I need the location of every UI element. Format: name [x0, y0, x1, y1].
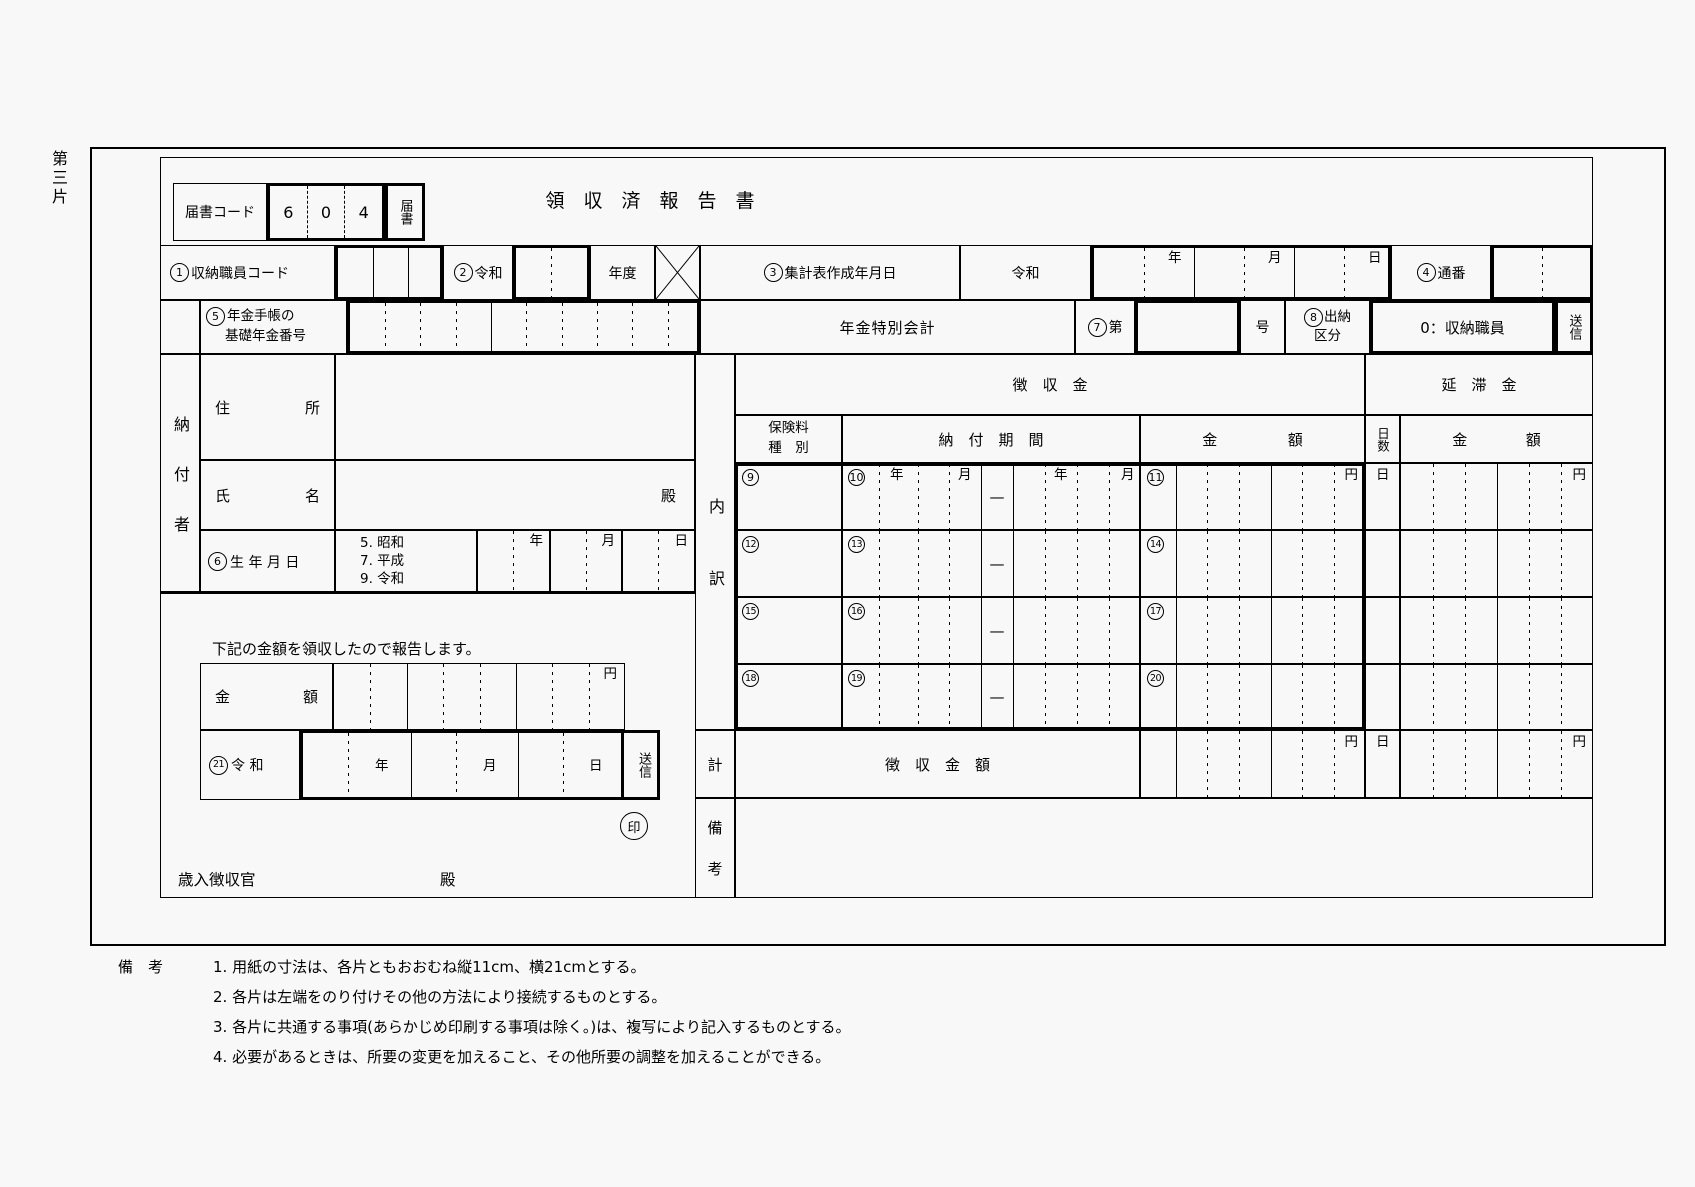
total-row-label: 計: [695, 730, 735, 798]
premium-type-line2: 種 別: [768, 439, 809, 459]
staff-code-text: 収納職員コード: [191, 263, 289, 283]
note-item: 3. 各片に共通する事項(あらかじめ印刷する事項は除く。)は、複写により記入する…: [213, 1016, 851, 1037]
premium-type-cell: 15: [735, 597, 842, 664]
circled-1: 1: [170, 263, 189, 282]
amount-label-right: 額: [303, 686, 318, 707]
amount-header-right: 額: [1526, 429, 1541, 450]
circled-11: 11: [1147, 469, 1164, 486]
cross-mark: [656, 246, 699, 299]
month-unit: 月: [483, 760, 497, 774]
period-dash: —: [981, 531, 1013, 596]
fiscal-year-input-cells: [513, 245, 590, 300]
note-item: 4. 必要があるときは、所要の変更を加えること、その他所要の調整を加えることがで…: [213, 1046, 830, 1067]
remarks-label: 備考: [705, 820, 726, 902]
circled-4: 4: [1417, 263, 1436, 282]
form-code-tab-label: 届書: [396, 199, 415, 225]
premium-type-line1: 保険料: [768, 419, 809, 439]
year-unit: 年: [530, 535, 544, 549]
year-unit: 年: [890, 469, 904, 483]
report-date-cells: 年 月 日 送信: [300, 730, 660, 800]
payment-period-header: 納 付 期 間: [842, 415, 1140, 463]
form-code-label: 届書コード: [173, 183, 267, 241]
crossed-out-cell: [655, 245, 700, 300]
premium-type-cell: 18: [735, 664, 842, 730]
period-dash: —: [981, 598, 1013, 663]
spacer-cell: [160, 300, 200, 354]
late-fee-days-cell: 日: [1365, 463, 1400, 530]
period-dash: —: [981, 464, 1013, 529]
serial-input-cells: [1491, 245, 1593, 300]
total-collection-amount-cell: 円: [1140, 730, 1365, 798]
address-label: 住所: [200, 354, 335, 460]
late-fee-days-cell: [1365, 597, 1400, 664]
circled-21: 21: [209, 756, 228, 775]
circled-19: 19: [848, 670, 865, 687]
yen-unit: 円: [1345, 736, 1359, 750]
amount-label: 金額: [200, 663, 333, 730]
circled-15: 15: [742, 603, 759, 620]
premium-type-cell: 12: [735, 530, 842, 597]
dai-text: 第: [1109, 317, 1123, 337]
collection-amount-cell: 14: [1140, 530, 1365, 597]
seal-char: 印: [627, 817, 640, 836]
breakdown-group-cell: 内訳: [695, 354, 735, 730]
send-flag-cell: 送信: [624, 733, 663, 797]
form-code-digit: 6: [270, 186, 308, 238]
name-input-cell: 殿: [335, 460, 695, 530]
month-unit: 月: [1121, 469, 1135, 483]
dono-honorific: 殿: [661, 485, 676, 506]
page-side-label: 第三片: [46, 150, 70, 207]
yen-unit: 円: [1345, 469, 1359, 483]
amount-header-left: 金: [1452, 429, 1467, 450]
dai-label: 7第: [1075, 300, 1135, 354]
basic-pension-number-line2: 基礎年金番号: [206, 327, 346, 347]
total-collection-label: 徴 収 金 額: [735, 730, 1140, 798]
circled-20: 20: [1147, 670, 1164, 687]
fiscal-era-label: 2令和: [443, 245, 513, 300]
birth-year-cells: 年: [477, 530, 550, 593]
name-label-right: 名: [305, 485, 320, 506]
revenue-officer-dono: 殿: [440, 868, 456, 890]
era-option: 5. 昭和: [360, 534, 476, 552]
birth-day-cells: 日: [622, 530, 695, 593]
revenue-officer-label: 歳入徴収官: [178, 868, 256, 890]
era-option: 9. 令和: [360, 570, 476, 588]
late-fee-amount-cell: 円: [1400, 463, 1593, 530]
staff-code-input-cells: [335, 245, 443, 300]
days-header-cell: 日数: [1365, 415, 1400, 463]
notes-label: 備 考: [118, 956, 163, 977]
late-fee-amount-header: 金額: [1400, 415, 1593, 463]
seal-mark: 印: [620, 812, 648, 840]
day-unit: 日: [1376, 736, 1390, 750]
payment-period-cell: 10 年 月 — 年 月: [842, 463, 1140, 530]
month-unit: 月: [602, 535, 616, 549]
collection-amount-header: 金額: [1140, 415, 1365, 463]
form-code-tab: 届書: [385, 183, 425, 241]
circled-10: 10: [848, 469, 865, 486]
amount-label-left: 金: [215, 686, 230, 707]
year-unit: 年: [1168, 252, 1182, 266]
year-unit: 年: [1054, 469, 1068, 483]
birthdate-label: 6生 年 月 日: [200, 530, 335, 593]
note-item: 1. 用紙の寸法は、各片ともおおむね縦11cm、横21cmとする。: [213, 956, 646, 977]
premium-type-header: 保険料 種 別: [735, 415, 842, 463]
remarks-label-cell: 備考: [695, 798, 735, 898]
divider: [160, 591, 695, 594]
report-date-text: 集計表作成年月日: [785, 263, 897, 283]
circled-14: 14: [1147, 536, 1164, 553]
address-label-left: 住: [215, 397, 230, 418]
cashier-category-value: 0：収納職員: [1370, 300, 1555, 354]
cashier-category-line1: 8出納: [1304, 308, 1351, 327]
circled-3: 3: [764, 263, 783, 282]
note-item: 2. 各片は左端をのり付けその他の方法により接続するものとする。: [213, 986, 666, 1007]
serial-text: 通番: [1438, 263, 1466, 283]
collection-amount-cell: 17: [1140, 597, 1365, 664]
month-unit: 月: [958, 469, 972, 483]
day-unit: 日: [1376, 469, 1390, 483]
payment-period-cell: 19 —: [842, 664, 1140, 730]
name-label: 氏名: [200, 460, 335, 530]
basic-pension-number-cells: [347, 300, 700, 354]
form-code-digit: 4: [345, 186, 382, 238]
circled-8: 8: [1304, 308, 1323, 327]
fiscal-era-text: 令和: [475, 263, 503, 283]
dai-number-input-cell: [1135, 300, 1240, 354]
payment-period-cell: 16 —: [842, 597, 1140, 664]
total-late-fee-cell: 円: [1400, 730, 1593, 798]
go-label: 号: [1240, 300, 1285, 354]
form-title: 領 収 済 報 告 書: [500, 186, 800, 213]
payer-group-cell: 納付者: [160, 354, 200, 593]
report-date-label: 21令 和: [200, 730, 300, 800]
send-flag-label: 送信: [1565, 314, 1584, 340]
payer-group-label: 納付者: [168, 416, 192, 566]
birthdate-text: 生 年 月 日: [230, 552, 299, 572]
era-option: 7. 平成: [360, 552, 476, 570]
collection-amount-cell: 20: [1140, 664, 1365, 730]
year-unit: 年: [375, 760, 389, 774]
report-date-label: 3集計表作成年月日: [700, 245, 960, 300]
day-unit: 日: [1368, 252, 1382, 266]
report-date-reiwa: 令和: [960, 245, 1091, 300]
address-input-cell: [335, 354, 695, 460]
basic-pension-number-line1: 5年金手帳の: [206, 307, 346, 327]
period-dash: —: [981, 665, 1013, 729]
send-flag-label: 送信: [634, 752, 653, 778]
cashier-category-text1: 出納: [1324, 308, 1351, 327]
report-statement: 下記の金額を領収したので報告します。: [212, 638, 481, 659]
circled-12: 12: [742, 536, 759, 553]
amount-input-cells: 円: [333, 663, 625, 730]
circled-16: 16: [848, 603, 865, 620]
form-code-digits: 6 0 4: [267, 183, 385, 241]
amount-header-left: 金: [1202, 429, 1217, 450]
birth-month-cells: 月: [550, 530, 622, 593]
amount-header-right: 額: [1288, 429, 1303, 450]
form-page: 第三片 届書コード 6 0 4 届書 領 収 済 報 告 書 1収納職員コード …: [0, 0, 1695, 1187]
report-date-reiwa-text: 令 和: [231, 755, 263, 775]
name-label-left: 氏: [215, 485, 230, 506]
late-fee-days-cell: [1365, 664, 1400, 730]
pension-label-text1: 年金手帳の: [227, 307, 295, 327]
premium-type-cell: 9: [735, 463, 842, 530]
breakdown-group-label: 内訳: [703, 498, 727, 642]
circled-13: 13: [848, 536, 865, 553]
circled-6: 6: [208, 552, 227, 571]
total-days-cell: 日: [1365, 730, 1400, 798]
day-unit: 日: [589, 760, 603, 774]
nendo-label: 年度: [590, 245, 655, 300]
form-code-digit: 0: [308, 186, 346, 238]
yen-unit: 円: [1573, 736, 1587, 750]
address-label-right: 所: [305, 397, 320, 418]
circled-9: 9: [742, 469, 759, 486]
cashier-category-line2: 区分: [1314, 327, 1341, 346]
payment-period-cell: 13 —: [842, 530, 1140, 597]
staff-code-label: 1収納職員コード: [160, 245, 335, 300]
report-date-ymd-cells: 年 月 日: [1091, 245, 1391, 300]
remarks-input-cell: [735, 798, 1593, 898]
day-unit: 日: [675, 535, 689, 549]
pension-special-account-label: 年金特別会計: [700, 300, 1075, 354]
late-fee-amount-cell: [1400, 664, 1593, 730]
collection-amount-cell: 11 円: [1140, 463, 1365, 530]
days-header-label: 日数: [1373, 427, 1392, 452]
circled-18: 18: [742, 670, 759, 687]
cashier-category-label: 8出納 区分: [1285, 300, 1370, 354]
collection-money-header: 徴 収 金: [735, 354, 1365, 415]
month-unit: 月: [1268, 252, 1282, 266]
circled-5: 5: [206, 307, 225, 326]
circled-7: 7: [1088, 318, 1107, 337]
late-fee-days-cell: [1365, 530, 1400, 597]
birthdate-era-options: 5. 昭和 7. 平成 9. 令和: [335, 530, 477, 593]
late-fee-amount-cell: [1400, 530, 1593, 597]
late-fee-amount-cell: [1400, 597, 1593, 664]
send-flag-cell: 送信: [1555, 300, 1593, 354]
late-fee-header: 延 滞 金: [1365, 354, 1593, 415]
basic-pension-number-label: 5年金手帳の 基礎年金番号: [200, 300, 347, 354]
yen-unit: 円: [604, 668, 618, 682]
serial-label: 4通番: [1391, 245, 1491, 300]
circled-17: 17: [1147, 603, 1164, 620]
yen-unit: 円: [1573, 469, 1587, 483]
circled-2: 2: [454, 263, 473, 282]
